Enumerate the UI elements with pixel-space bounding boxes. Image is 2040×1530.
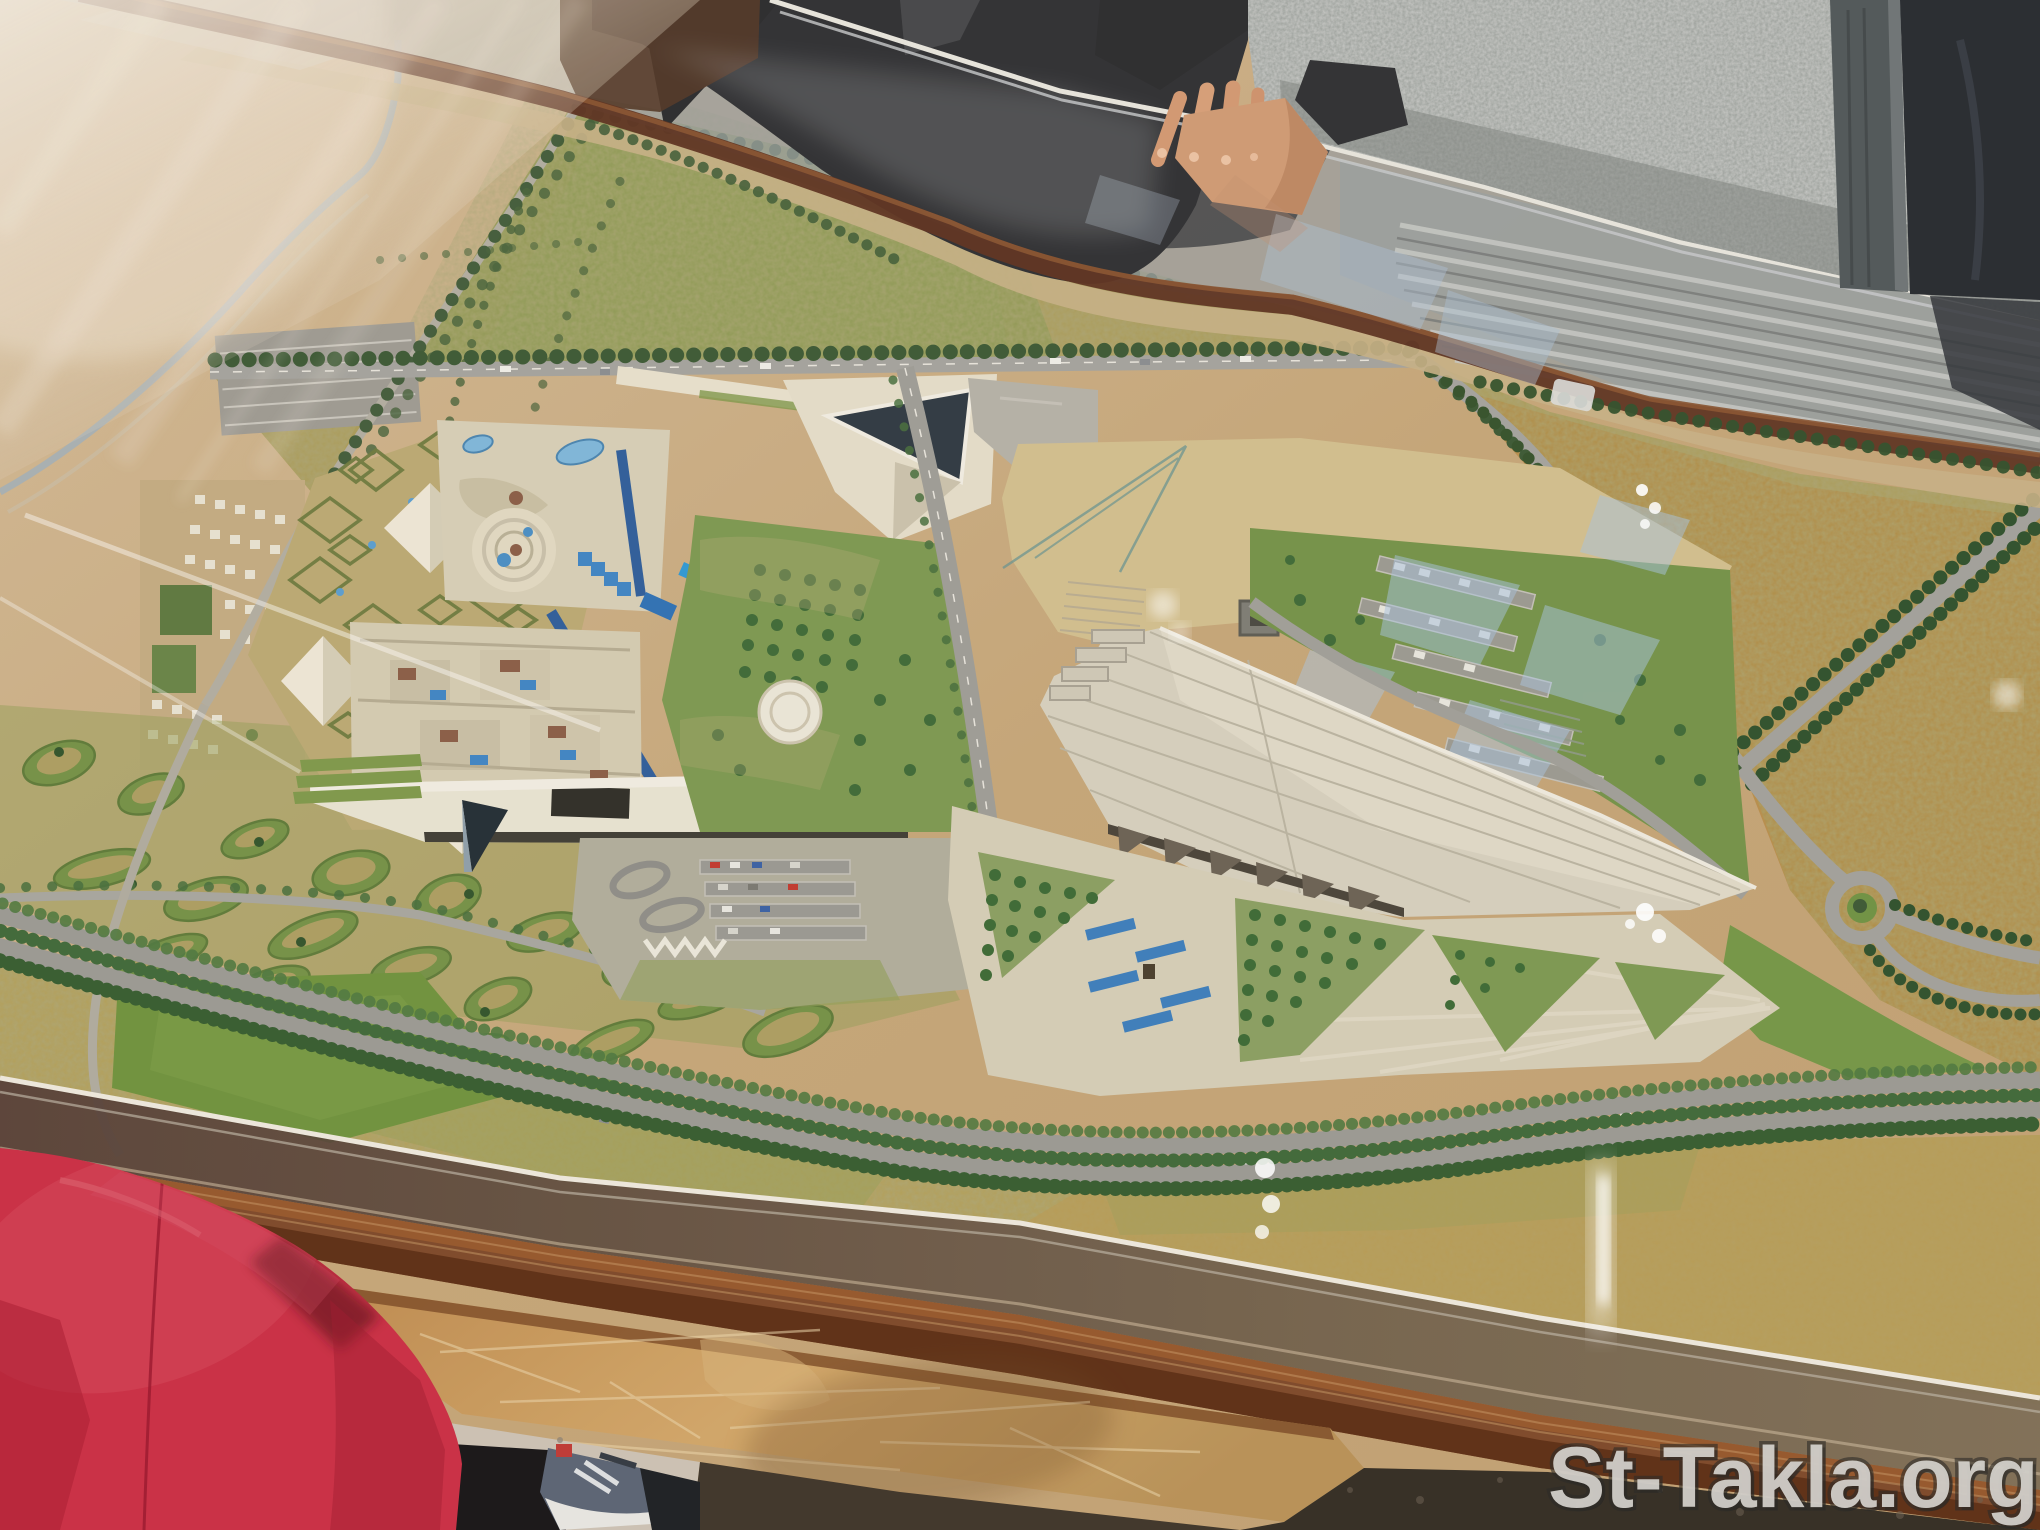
svg-text:St-Takla.org: St-Takla.org — [1548, 1430, 2039, 1526]
